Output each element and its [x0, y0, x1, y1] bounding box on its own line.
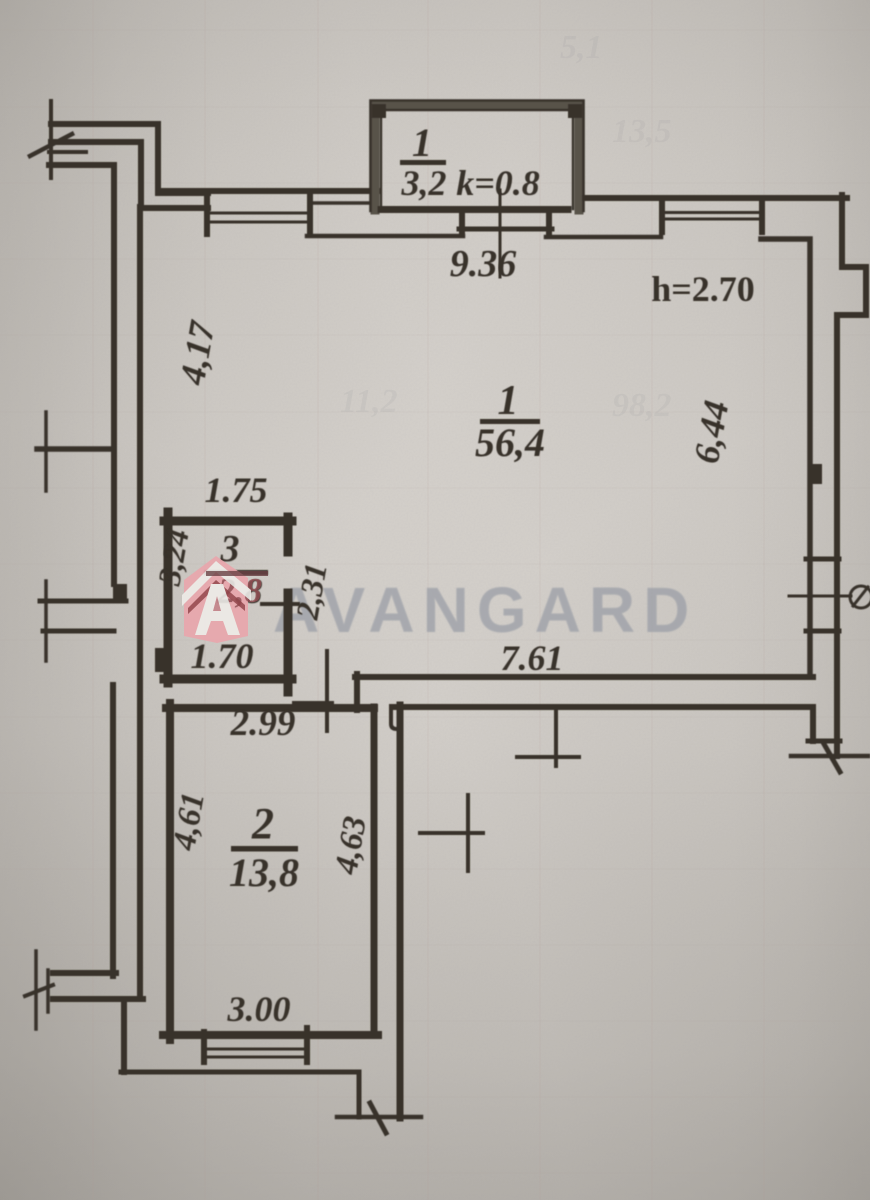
- svg-text:5,1: 5,1: [560, 29, 603, 66]
- svg-text:k=0.8: k=0.8: [456, 163, 540, 203]
- svg-text:1.70: 1.70: [191, 636, 254, 676]
- svg-text:AVANGARD: AVANGARD: [273, 574, 697, 646]
- svg-text:13,8: 13,8: [229, 850, 299, 895]
- svg-text:98,2: 98,2: [612, 387, 672, 424]
- svg-text:2.99: 2.99: [230, 703, 296, 744]
- svg-text:2: 2: [251, 799, 274, 848]
- svg-text:h=2.70: h=2.70: [651, 269, 755, 309]
- svg-text:1.75: 1.75: [205, 470, 268, 510]
- svg-text:9.36: 9.36: [450, 243, 517, 285]
- svg-text:3.00: 3.00: [227, 989, 291, 1029]
- svg-text:13,5: 13,5: [612, 113, 672, 150]
- svg-text:11,2: 11,2: [340, 383, 398, 420]
- svg-text:56,4: 56,4: [475, 420, 545, 465]
- svg-text:7.61: 7.61: [501, 638, 564, 678]
- svg-text:1: 1: [498, 378, 519, 424]
- svg-text:1: 1: [412, 120, 432, 165]
- svg-text:3,2: 3,2: [401, 163, 447, 203]
